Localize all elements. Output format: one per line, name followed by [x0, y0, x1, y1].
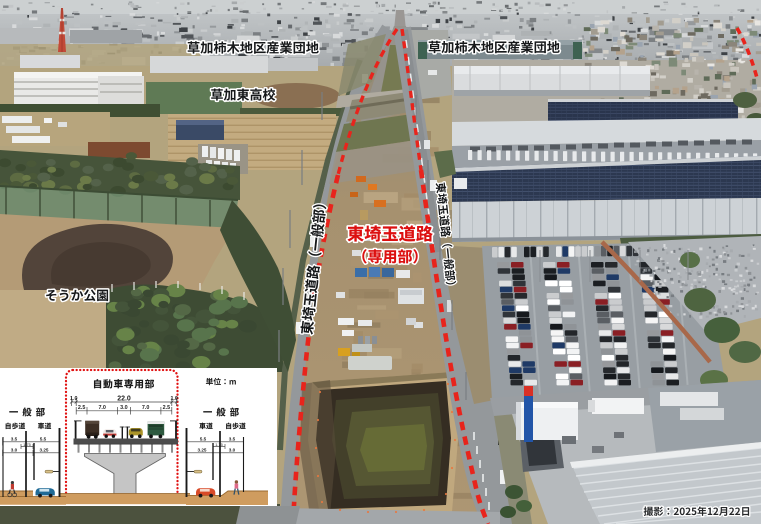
svg-text:7.0: 7.0 [142, 405, 150, 411]
svg-text:1.0: 1.0 [170, 396, 178, 402]
svg-text:3.5: 3.5 [11, 436, 18, 441]
svg-text:3.25: 3.25 [40, 447, 49, 452]
svg-text:3.5: 3.5 [229, 436, 236, 441]
svg-text:3.25: 3.25 [198, 447, 207, 452]
svg-text:22.0: 22.0 [117, 395, 131, 402]
svg-text:5.5: 5.5 [200, 436, 207, 441]
svg-text:1.75: 1.75 [23, 443, 30, 447]
svg-text:1.0: 1.0 [70, 396, 78, 402]
svg-text:2.5: 2.5 [78, 405, 86, 411]
svg-text:5.5: 5.5 [40, 436, 47, 441]
svg-text:3.0: 3.0 [229, 447, 236, 452]
svg-text:3.0: 3.0 [11, 447, 18, 452]
svg-text:7.0: 7.0 [98, 405, 106, 411]
svg-text:2.5: 2.5 [163, 405, 171, 411]
svg-text:1.75: 1.75 [215, 443, 222, 447]
svg-text:3.0: 3.0 [120, 405, 128, 411]
